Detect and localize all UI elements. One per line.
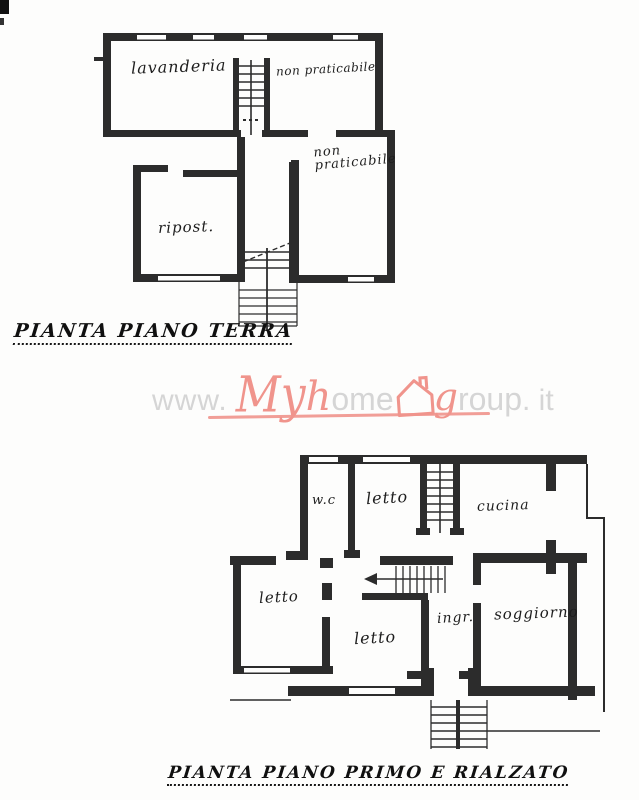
watermark-it: . it bbox=[522, 384, 554, 418]
staircase-entry-external bbox=[431, 700, 487, 749]
staircase-primo-upper bbox=[416, 455, 464, 535]
room-label-letto-nord: letto bbox=[366, 487, 409, 508]
room-label-lavanderia: lavanderia bbox=[131, 55, 227, 77]
plan-title-piano-terra: PIANTA PIANO TERRA bbox=[13, 320, 295, 345]
room-label-letto-centrale: letto bbox=[354, 627, 397, 648]
plan-title-piano-primo-e-rialzato: PIANTA PIANO PRIMO E RIALZATO bbox=[167, 763, 571, 786]
room-label-wc: w.c bbox=[312, 493, 336, 508]
watermark-www: www. bbox=[152, 384, 228, 418]
staircase-primo-half-flight bbox=[364, 566, 445, 593]
room-label-cucina: cucina bbox=[477, 497, 530, 515]
watermark-h: h bbox=[306, 374, 332, 420]
room-label-letto-ovest: letto bbox=[259, 587, 300, 607]
watermark-ome: ome bbox=[331, 381, 393, 418]
scanned-floor-plan-page: lavanderia non praticabile non praticabi… bbox=[0, 0, 639, 800]
room-label-ripostiglio: ripost. bbox=[158, 217, 215, 237]
staircase-terra-upper bbox=[233, 58, 270, 137]
room-label-soggiorno: soggiorno bbox=[494, 603, 579, 624]
watermark-myhomegroup: www. My h ome g roup . it bbox=[152, 366, 554, 421]
room-label-ingresso: ingr. bbox=[437, 609, 475, 627]
